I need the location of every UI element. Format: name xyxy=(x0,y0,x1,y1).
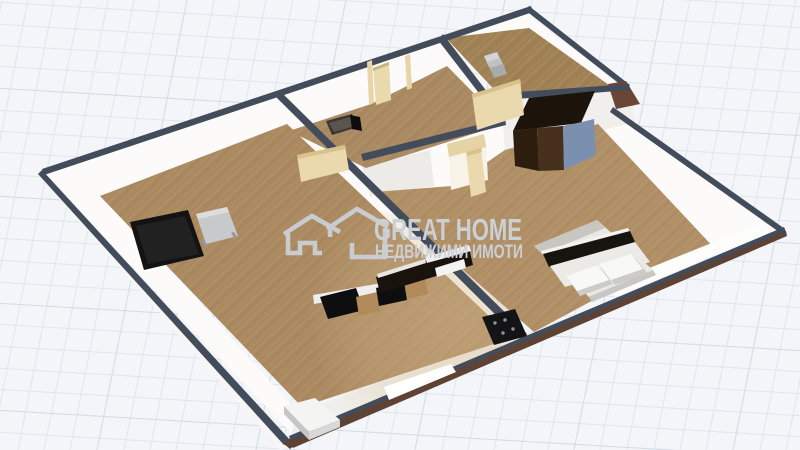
svg-text:НЕДВИЖИМИ ИМОТИ: НЕДВИЖИМИ ИМОТИ xyxy=(375,241,523,263)
